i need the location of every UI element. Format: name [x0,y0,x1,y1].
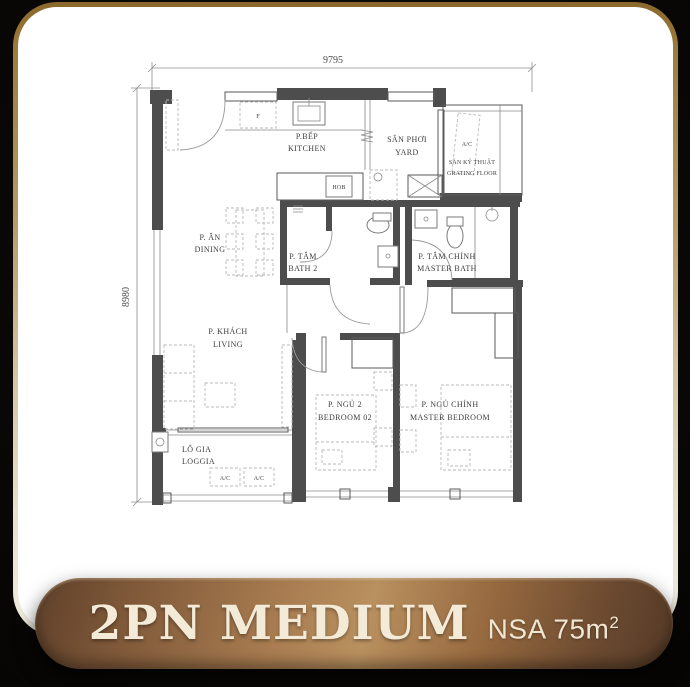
fridge-label: F [256,114,260,120]
kitchen-fixtures [225,98,480,200]
coffee-table [205,383,235,407]
yard-label-en: YARD [395,148,418,157]
unit-type-title: 2PN MEDIUM [89,600,470,647]
unit-area-sup: 2 [609,613,619,632]
kitchen-label-en: KITCHEN [288,144,326,153]
loggia-label-en: LOGGIA [182,457,215,466]
bath2-sink-icon [378,246,398,267]
bath2-label-en: BATH 2 [288,264,317,273]
loggia-fixture [152,432,168,452]
ac-ledge-label: A/C [462,142,473,148]
dimension-top: 9795 [148,55,536,92]
living-label-vi: P. KHÁCH [208,326,247,336]
dining-table [226,208,273,276]
unit-type-banner: 2PN MEDIUM NSA 75m2 [35,578,673,669]
entrance-door-leaf [166,100,178,150]
tv-cabinet [282,345,292,427]
wardrobes [352,288,518,368]
sofa [164,345,194,429]
master-bedroom-label-en: MASTER BEDROOM [410,413,490,422]
kitchen-label-vi: P.BẾP [296,131,318,141]
room-labels: P.BẾP KITCHEN SÂN PHƠI YARD A/C SÀN KỸ T… [182,114,497,482]
entrance-door-arc [180,100,225,150]
louvre-vent-icon [361,130,373,142]
bedroom2-label-en: BEDROOM 02 [318,413,372,422]
bedroom2-door-leaf [322,337,326,372]
bedroom2-label-vi: P. NGỦ 2 [328,399,362,409]
loggia-ac1-label: A/C [220,476,231,482]
bedroom2-wardrobe [352,338,393,368]
master-bed [400,385,511,470]
dining-label-en: DINING [195,245,226,254]
dining-label-vi: P. ĂN [199,233,220,242]
loggia-label-vi: LÔ GIA [182,444,211,454]
master-bedroom-door-arc [404,287,428,333]
unit-area-text: NSA 75m [488,613,610,644]
yard-label-vi: SÂN PHƠI [387,134,427,144]
dimension-left-value: 8980 [121,287,132,307]
windows-and-light-walls [152,92,522,503]
grating-label-vi: SÀN KỸ THUẬT [449,158,495,166]
grating-label-en: GRATING FLOOR [447,171,497,177]
hall-door-arc [330,285,370,324]
loggia-ac2-label: A/C [254,476,265,482]
living-label-en: LIVING [213,340,243,349]
master-bedroom-label-vi: P. NGỦ CHÍNH [421,399,478,409]
master-bath-label-en: MASTER BATH [417,264,477,273]
master-sink-icon [415,210,437,228]
bath2-label-vi: P. TẮM [289,251,317,261]
walls [150,88,523,505]
master-toilet-icon [447,224,463,248]
master-bedroom-door-leaf [400,287,404,333]
washer-icon [370,170,397,200]
master-bath-label-vi: P. TẮM CHÍNH [418,251,475,261]
unit-area: NSA 75m2 [488,614,620,643]
dimension-top-value: 9795 [323,55,343,66]
hob-label: HOB [332,185,345,191]
master-wardrobe-top [452,288,515,313]
